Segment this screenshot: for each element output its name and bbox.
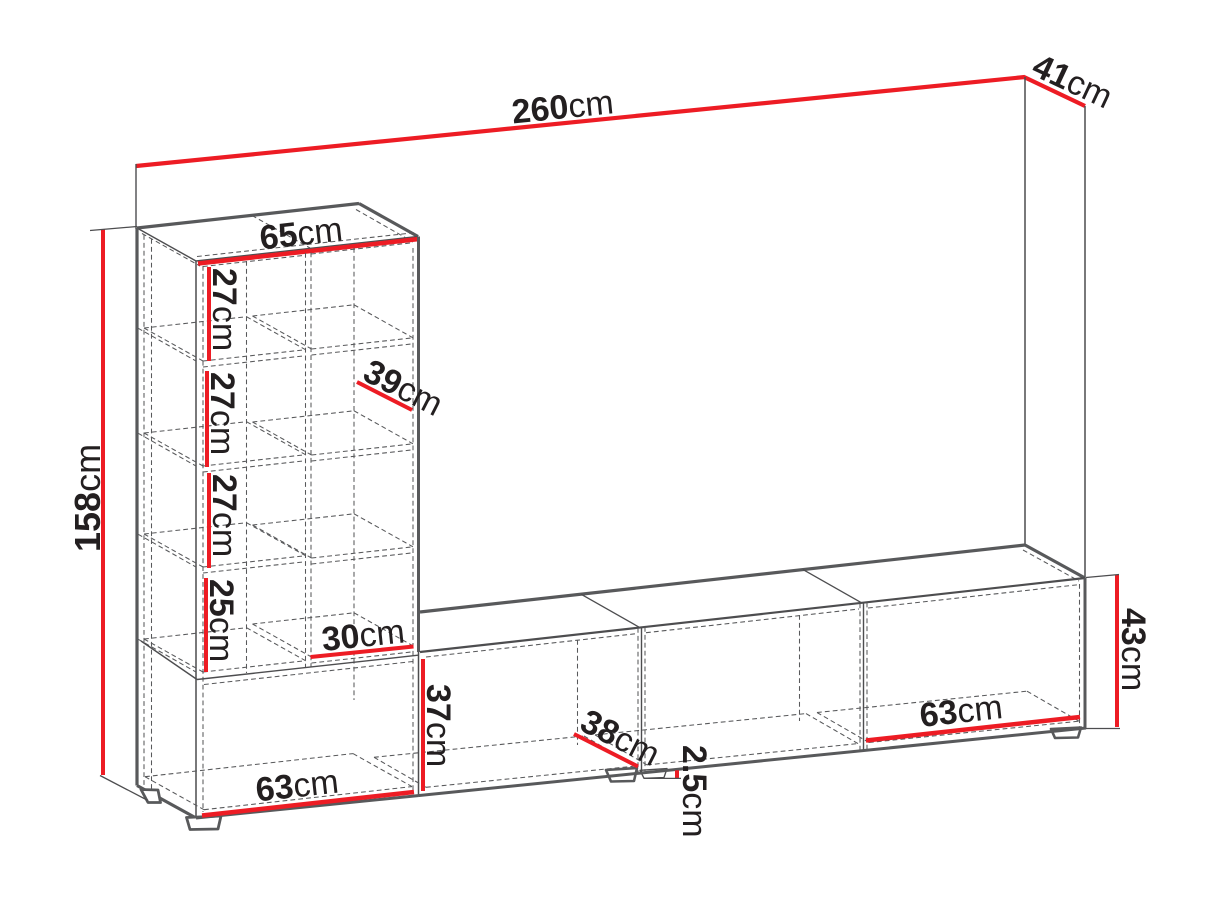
svg-text:27cm: 27cm: [205, 268, 243, 351]
svg-text:25cm: 25cm: [202, 579, 240, 662]
svg-text:27cm: 27cm: [205, 474, 243, 557]
svg-text:2.5cm: 2.5cm: [675, 745, 713, 838]
svg-text:158cm: 158cm: [67, 444, 108, 552]
svg-text:27cm: 27cm: [203, 372, 241, 455]
svg-text:37cm: 37cm: [419, 684, 457, 767]
svg-text:43cm: 43cm: [1114, 608, 1152, 691]
